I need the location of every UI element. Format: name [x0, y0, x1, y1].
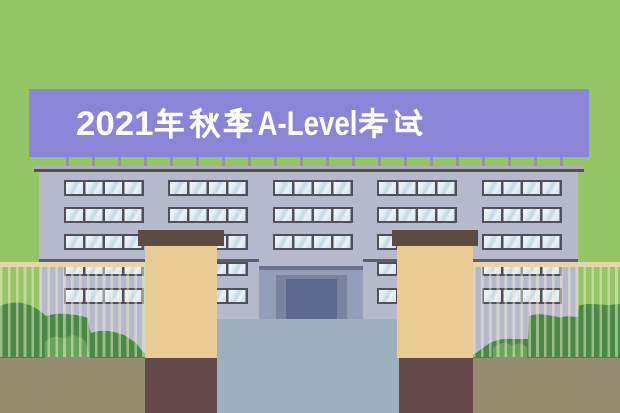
svg-text:2021: 2021: [76, 105, 154, 143]
svg-text:A-Level: A-Level: [258, 105, 358, 143]
